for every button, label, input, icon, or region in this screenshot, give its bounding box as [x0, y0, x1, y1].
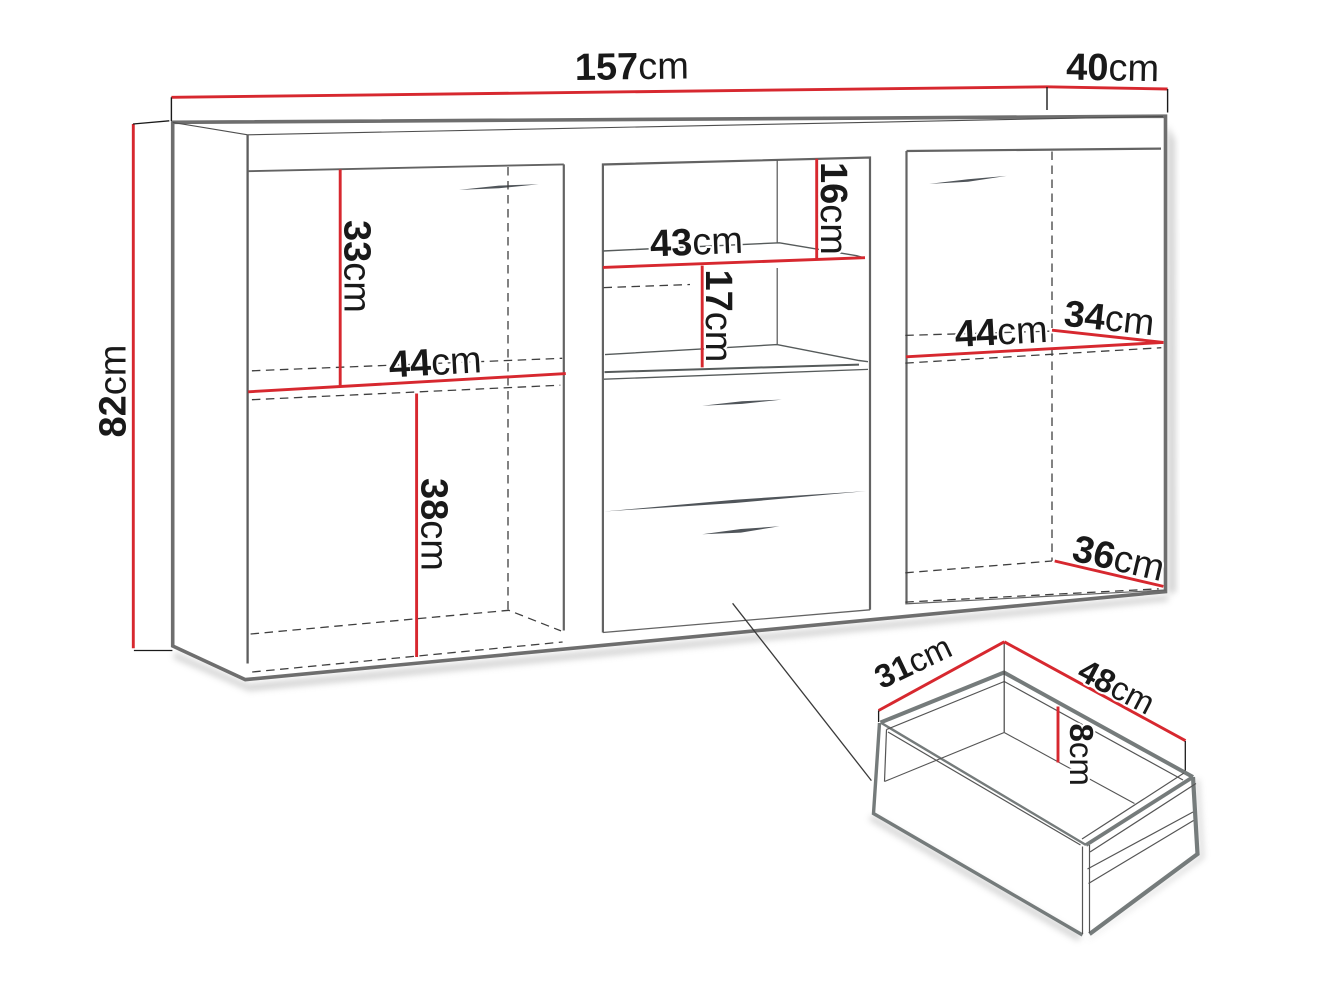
svg-text:16cm: 16cm — [812, 162, 854, 255]
svg-text:44cm: 44cm — [388, 339, 483, 386]
svg-text:17cm: 17cm — [697, 270, 739, 363]
svg-text:40cm: 40cm — [1066, 47, 1160, 91]
svg-text:33cm: 33cm — [336, 220, 378, 313]
svg-text:157cm: 157cm — [575, 45, 690, 89]
svg-text:8cm: 8cm — [1063, 724, 1100, 786]
svg-text:44cm: 44cm — [954, 309, 1049, 356]
svg-text:38cm: 38cm — [413, 478, 455, 571]
svg-text:43cm: 43cm — [649, 220, 744, 266]
svg-text:82cm: 82cm — [93, 345, 135, 438]
